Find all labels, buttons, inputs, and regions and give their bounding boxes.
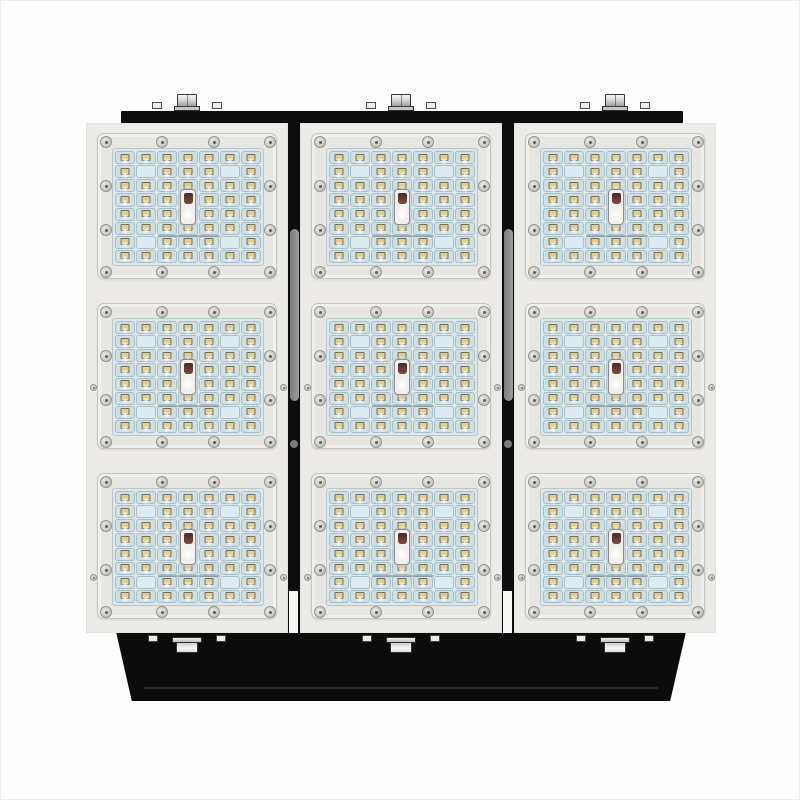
lens-shine [226,398,235,404]
lens-shine [184,172,193,178]
lens-shine [591,540,600,546]
lens-shine [570,328,579,334]
lens-shine [461,228,470,234]
lens-shine [440,158,449,164]
center-connector [394,359,410,395]
lens-shine [419,256,428,262]
led-lens [157,420,177,433]
led-lens [371,576,391,589]
led-lens [220,250,240,263]
led-lens [669,179,689,192]
led-lens [648,548,668,561]
led-lens [115,548,135,561]
led-lens [220,392,240,405]
led-lens [115,165,135,178]
led-lens [350,491,370,504]
lens-shine [549,582,558,588]
lens-shine [633,526,642,532]
lens-shine [591,200,600,206]
lens-shine [142,384,151,390]
led-lens [371,165,391,178]
led-lens [543,590,563,603]
led-lens [329,420,349,433]
led-lens [648,505,668,518]
gap-rivet [504,440,512,448]
lens-shine [121,186,130,192]
led-lens [157,392,177,405]
lens-shine [419,342,428,348]
led-lens [543,179,563,192]
base-bolt-head [390,642,412,653]
led-lens [220,519,240,532]
led-lens [371,250,391,263]
panel-edge-screw [90,384,97,391]
led-lens [220,562,240,575]
led-lens [669,420,689,433]
led-lens [329,406,349,419]
lens-shine [205,568,214,574]
led-lens [434,208,454,221]
lens-shine [226,186,235,192]
led-lens [199,562,219,575]
led-lens [371,179,391,192]
lens-shine [184,426,193,432]
lens-shine [398,242,407,248]
led-lens [157,151,177,164]
led-lens [329,533,349,546]
led-module [525,473,705,619]
module-frame-screw [100,564,112,576]
lens-shine [205,554,214,560]
led-lens [585,222,605,235]
lens-shine [633,342,642,348]
lens-shine [205,228,214,234]
lens-shine [377,426,386,432]
led-lens [371,378,391,391]
module-frame-screw [100,394,112,406]
lens-shine [461,328,470,334]
led-lens [157,519,177,532]
led-lens [669,236,689,249]
lens-shine [377,256,386,262]
module-frame-screw [692,564,704,576]
fixture-backing [86,123,716,633]
led-lens [392,165,412,178]
led-lens [199,165,219,178]
lens-shine [163,596,172,602]
lens-shine [142,356,151,362]
lens-shine [461,512,470,518]
lens-shine [121,384,130,390]
led-lens [606,335,626,348]
base-bolt-head [604,642,626,653]
lens-shine [591,356,600,362]
lens-shine [205,582,214,588]
led-lens [350,208,370,221]
led-lens [115,590,135,603]
center-connector [180,359,196,395]
led-lens [585,179,605,192]
lens-shine [377,214,386,220]
lens-shine [163,540,172,546]
led-lens [220,533,240,546]
lens-shine [440,554,449,560]
led-lens [585,590,605,603]
lens-shine [142,228,151,234]
lens-shine [163,582,172,588]
led-lens [606,250,626,263]
led-lens [220,193,240,206]
led-lens [178,250,198,263]
led-lens [585,562,605,575]
module-frame-screw [100,136,112,148]
led-lens [350,236,370,249]
led-lens [543,321,563,334]
led-lens [627,349,647,362]
led-lens [136,505,156,518]
led-lens [627,321,647,334]
led-lens [648,420,668,433]
lens-shine [398,582,407,588]
led-lens [455,349,475,362]
led-lens [392,576,412,589]
led-lens [329,562,349,575]
lens-shine [247,200,256,206]
led-lens [564,208,584,221]
lens-shine [205,370,214,376]
center-connector [608,189,624,225]
led-lens [669,562,689,575]
lens-shine [654,256,663,262]
led-lens [543,378,563,391]
led-lens [350,420,370,433]
led-lens [115,236,135,249]
led-lens [606,491,626,504]
lens-shine [205,540,214,546]
led-lens [543,548,563,561]
led-lens [241,562,261,575]
led-lens [543,406,563,419]
lens-shine [247,356,256,362]
led-lens [669,519,689,532]
module-frame-screw [636,476,648,488]
lens-shine [570,356,579,362]
module-print-marking [158,575,220,577]
lens-shine [633,356,642,362]
lens-shine [591,512,600,518]
module-frame-screw [208,606,220,618]
led-lens [434,179,454,192]
led-lens [455,250,475,263]
lens-shine [205,186,214,192]
lens-shine [591,526,600,532]
lens-shine [570,554,579,560]
lens-shine [419,412,428,418]
lens-shine [591,328,600,334]
led-lens [413,208,433,221]
lens-shine [419,214,428,220]
lens-shine [205,512,214,518]
led-lens [115,250,135,263]
module-frame-screw [422,476,434,488]
led-lens [350,179,370,192]
lens-shine [461,200,470,206]
panel-edge-screw [518,384,525,391]
module-frame-screw [370,306,382,318]
lens-shine [633,242,642,248]
lens-shine [184,328,193,334]
led-lens [220,406,240,419]
lens-shine [549,426,558,432]
led-lens [392,406,412,419]
lens-shine [226,158,235,164]
module-frame-screw [264,350,276,362]
lens-shine [121,512,130,518]
center-connector [394,189,410,225]
led-lens [564,335,584,348]
led-lens [455,335,475,348]
lens-shine [419,186,428,192]
module-frame-screw [156,266,168,278]
module-frame-screw [478,180,490,192]
led-lens [564,378,584,391]
connector-chip [184,533,193,544]
led-lens [585,335,605,348]
led-module [525,133,705,279]
lens-shine [335,512,344,518]
led-lens [241,208,261,221]
lens-shine [205,412,214,418]
led-lens [564,576,584,589]
lens-shine [226,256,235,262]
led-lens [329,321,349,334]
base-bolt-nut [148,635,158,642]
led-lens [669,533,689,546]
led-lens [606,321,626,334]
module-frame-screw [584,436,596,448]
led-lens [136,533,156,546]
lens-shine [570,398,579,404]
led-lens [455,208,475,221]
led-lens [178,165,198,178]
lens-shine [570,200,579,206]
led-lens [564,505,584,518]
lens-shine [226,426,235,432]
mount-bolt-nut [640,102,650,109]
lens-shine [335,356,344,362]
lens-shine [142,370,151,376]
led-lens [564,548,584,561]
lens-shine [633,370,642,376]
led-lens [413,533,433,546]
lens-shine [163,398,172,404]
led-lens [543,222,563,235]
led-lens [434,406,454,419]
lens-shine [633,398,642,404]
module-frame-screw [100,266,112,278]
led-lens [115,321,135,334]
module-frame-screw [422,266,434,278]
center-connector [394,529,410,565]
lens-shine [356,228,365,234]
lens-shine [419,158,428,164]
center-connector [608,359,624,395]
lens-shine [163,186,172,192]
lens-shine [591,342,600,348]
led-lens [413,378,433,391]
led-lens [136,335,156,348]
lens-shine [612,172,621,178]
lens-shine [549,512,558,518]
lens-shine [549,242,558,248]
lens-shine [247,242,256,248]
lens-shine [356,200,365,206]
led-lens [627,562,647,575]
led-lens [455,179,475,192]
led-lens [392,236,412,249]
lens-shine [356,370,365,376]
lens-shine [570,426,579,432]
led-lens [350,335,370,348]
led-lens [115,562,135,575]
module-frame-screw [692,224,704,236]
gap-notch [289,591,298,633]
lens-shine [226,596,235,602]
lens-shine [549,498,558,504]
led-lens [329,222,349,235]
lens-shine [121,228,130,234]
lens-shine [335,540,344,546]
led-lens [329,165,349,178]
led-lens [241,349,261,362]
led-lens [199,193,219,206]
panel-edge-screw [494,574,501,581]
led-lens [220,548,240,561]
led-lens [350,406,370,419]
lens-shine [377,398,386,404]
led-lens [350,250,370,263]
led-lens [543,363,563,376]
led-lens [220,222,240,235]
led-lens [606,420,626,433]
lens-shine [633,172,642,178]
lens-shine [549,172,558,178]
lens-shine [549,256,558,262]
led-lens [434,236,454,249]
lens-shine [163,356,172,362]
lens-shine [440,328,449,334]
module-frame-screw [100,476,112,488]
led-lens [455,406,475,419]
lens-shine [612,342,621,348]
lens-shine [226,384,235,390]
led-lens [350,378,370,391]
lens-shine [461,186,470,192]
lens-shine [377,568,386,574]
module-frame-screw [528,476,540,488]
lens-shine [335,554,344,560]
led-lens [241,151,261,164]
module-frame-screw [314,350,326,362]
led-lens [455,576,475,589]
product-photo-led-floodlight [0,0,800,800]
lens-shine [226,200,235,206]
panel-edge-screw [708,384,715,391]
lens-shine [570,228,579,234]
led-lens [199,420,219,433]
lens-shine [377,158,386,164]
led-lens [350,533,370,546]
lens-shine [377,512,386,518]
led-lens [585,378,605,391]
module-frame-screw [100,306,112,318]
module-frame-screw [100,520,112,532]
module-frame-screw [314,180,326,192]
module-frame-screw [264,266,276,278]
led-lens [648,349,668,362]
led-lens [241,590,261,603]
led-lens [455,151,475,164]
led-lens [455,420,475,433]
lens-shine [142,200,151,206]
led-lens [115,222,135,235]
lens-shine [461,398,470,404]
lens-shine [675,158,684,164]
led-lens [329,349,349,362]
led-lens [606,505,626,518]
lens-shine [163,328,172,334]
led-lens [627,165,647,178]
lens-shine [440,526,449,532]
lens-shine [142,158,151,164]
lens-shine [612,582,621,588]
panel-edge-screw [280,574,287,581]
lens-shine [121,242,130,248]
led-lens [627,392,647,405]
lens-shine [419,328,428,334]
lens-shine [570,158,579,164]
module-frame-screw [478,520,490,532]
lens-shine [247,172,256,178]
module-frame-screw [584,306,596,318]
mount-bolt-nut [580,102,590,109]
lens-shine [461,582,470,588]
lens-shine [377,342,386,348]
led-lens [669,222,689,235]
mount-bolt-nut [426,102,436,109]
module-frame-screw [156,436,168,448]
led-lens [585,491,605,504]
lens-shine [142,214,151,220]
module-frame-screw [528,564,540,576]
lens-shine [335,214,344,220]
lens-shine [675,200,684,206]
led-lens [669,193,689,206]
lens-shine [591,554,600,560]
module-print-marking [586,405,648,407]
led-lens [329,179,349,192]
module-frame-screw [156,476,168,488]
led-lens [413,392,433,405]
lens-shine [163,342,172,348]
led-lens [241,491,261,504]
led-lens [627,548,647,561]
lens-shine [633,200,642,206]
led-lens [543,519,563,532]
led-lens [241,179,261,192]
led-lens [669,165,689,178]
lens-shine [591,228,600,234]
